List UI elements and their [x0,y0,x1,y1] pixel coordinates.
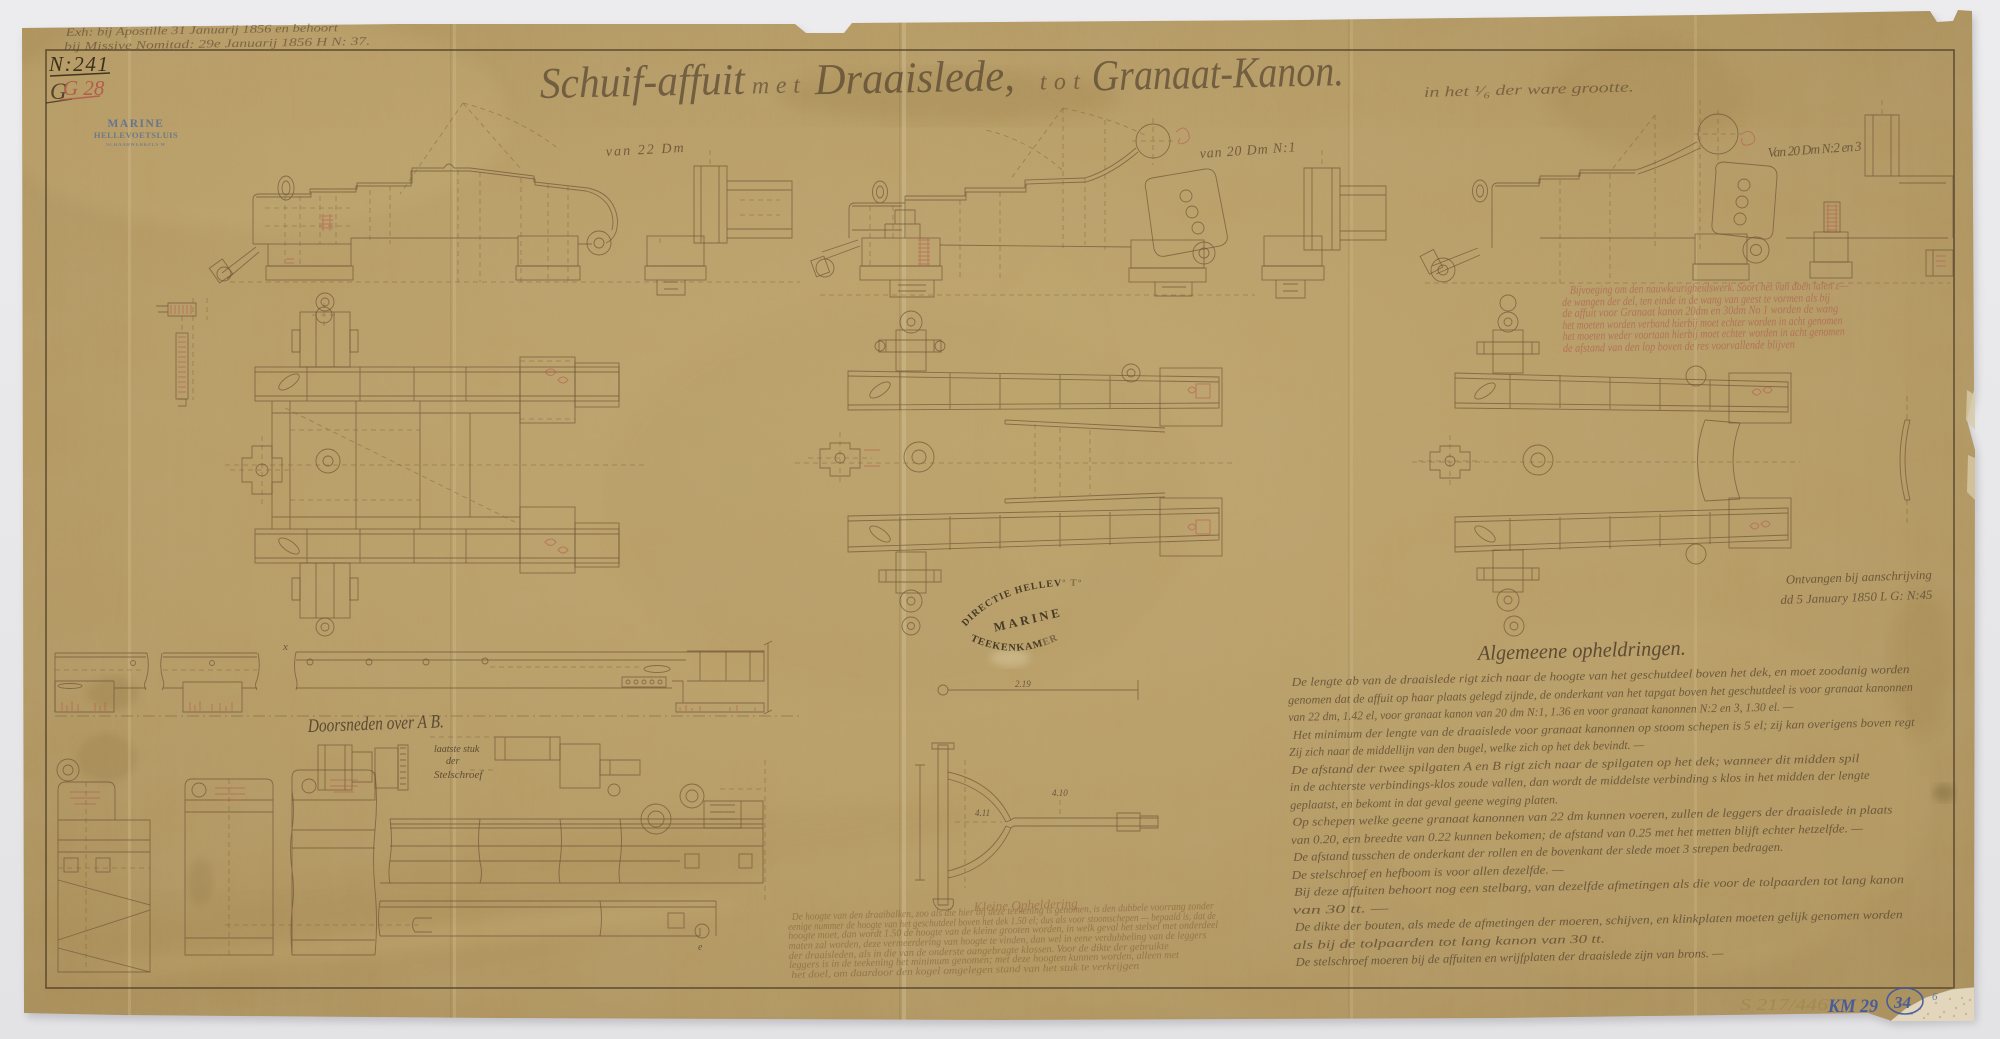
svg-text:34: 34 [1893,993,1911,1012]
svg-text:met: met [752,73,802,100]
svg-text:van 30 tt. —: van 30 tt. — [1292,901,1389,917]
svg-text:x: x [282,641,288,653]
svg-text:2.19: 2.19 [1015,679,1031,689]
svg-text:S 217/446: S 217/446 [1740,995,1829,1014]
svg-text:HELLEVOETSLUIS: HELLEVOETSLUIS [94,130,178,140]
svg-text:tot: tot [1040,69,1082,96]
svg-text:4.11: 4.11 [975,808,990,818]
svg-text:laatste stuk: laatste stuk [434,744,480,755]
svg-text:N:241: N:241 [48,52,108,76]
svg-text:Schuif-affuit: Schuif-affuit [539,55,747,108]
svg-text:4.10: 4.10 [1052,788,1068,798]
svg-text:der: der [446,756,459,767]
svg-text:Granaat-Kanon.: Granaat-Kanon. [1091,46,1344,100]
svg-text:6: 6 [1932,991,1938,1003]
svg-text:Draaislede,: Draaislede, [813,51,1015,104]
svg-text:e: e [698,942,703,953]
svg-text:MARINE: MARINE [108,118,165,130]
svg-text:KM 29: KM 29 [1827,996,1878,1017]
svg-text:SCHAARWERKPLS W: SCHAARWERKPLS W [106,143,166,148]
svg-text:Stelschroef: Stelschroef [434,769,484,781]
